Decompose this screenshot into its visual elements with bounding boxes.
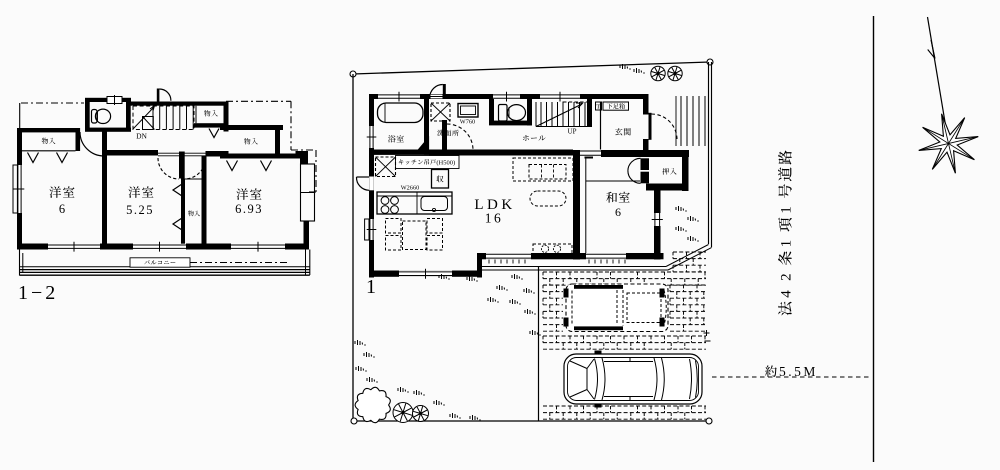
svg-text:T: T — [596, 103, 600, 110]
svg-text:5.25: 5.25 — [126, 203, 154, 217]
svg-text:DN: DN — [136, 132, 147, 141]
svg-text:6: 6 — [59, 202, 65, 216]
svg-text:1−2: 1−2 — [18, 282, 58, 304]
svg-text:6: 6 — [615, 205, 621, 219]
svg-text:6.93: 6.93 — [235, 202, 263, 216]
svg-text:1: 1 — [366, 276, 376, 298]
svg-text:1: 1 — [779, 240, 795, 248]
svg-text:2: 2 — [779, 273, 795, 281]
svg-text:W760: W760 — [460, 118, 475, 125]
svg-text:16: 16 — [485, 211, 504, 226]
svg-text:5.5M: 5.5M — [779, 364, 818, 379]
svg-text:4: 4 — [779, 290, 795, 298]
svg-text:1: 1 — [779, 206, 795, 214]
svg-text:(H500): (H500) — [436, 160, 455, 167]
svg-text:W2660: W2660 — [401, 184, 420, 191]
svg-text:UP: UP — [568, 127, 577, 135]
